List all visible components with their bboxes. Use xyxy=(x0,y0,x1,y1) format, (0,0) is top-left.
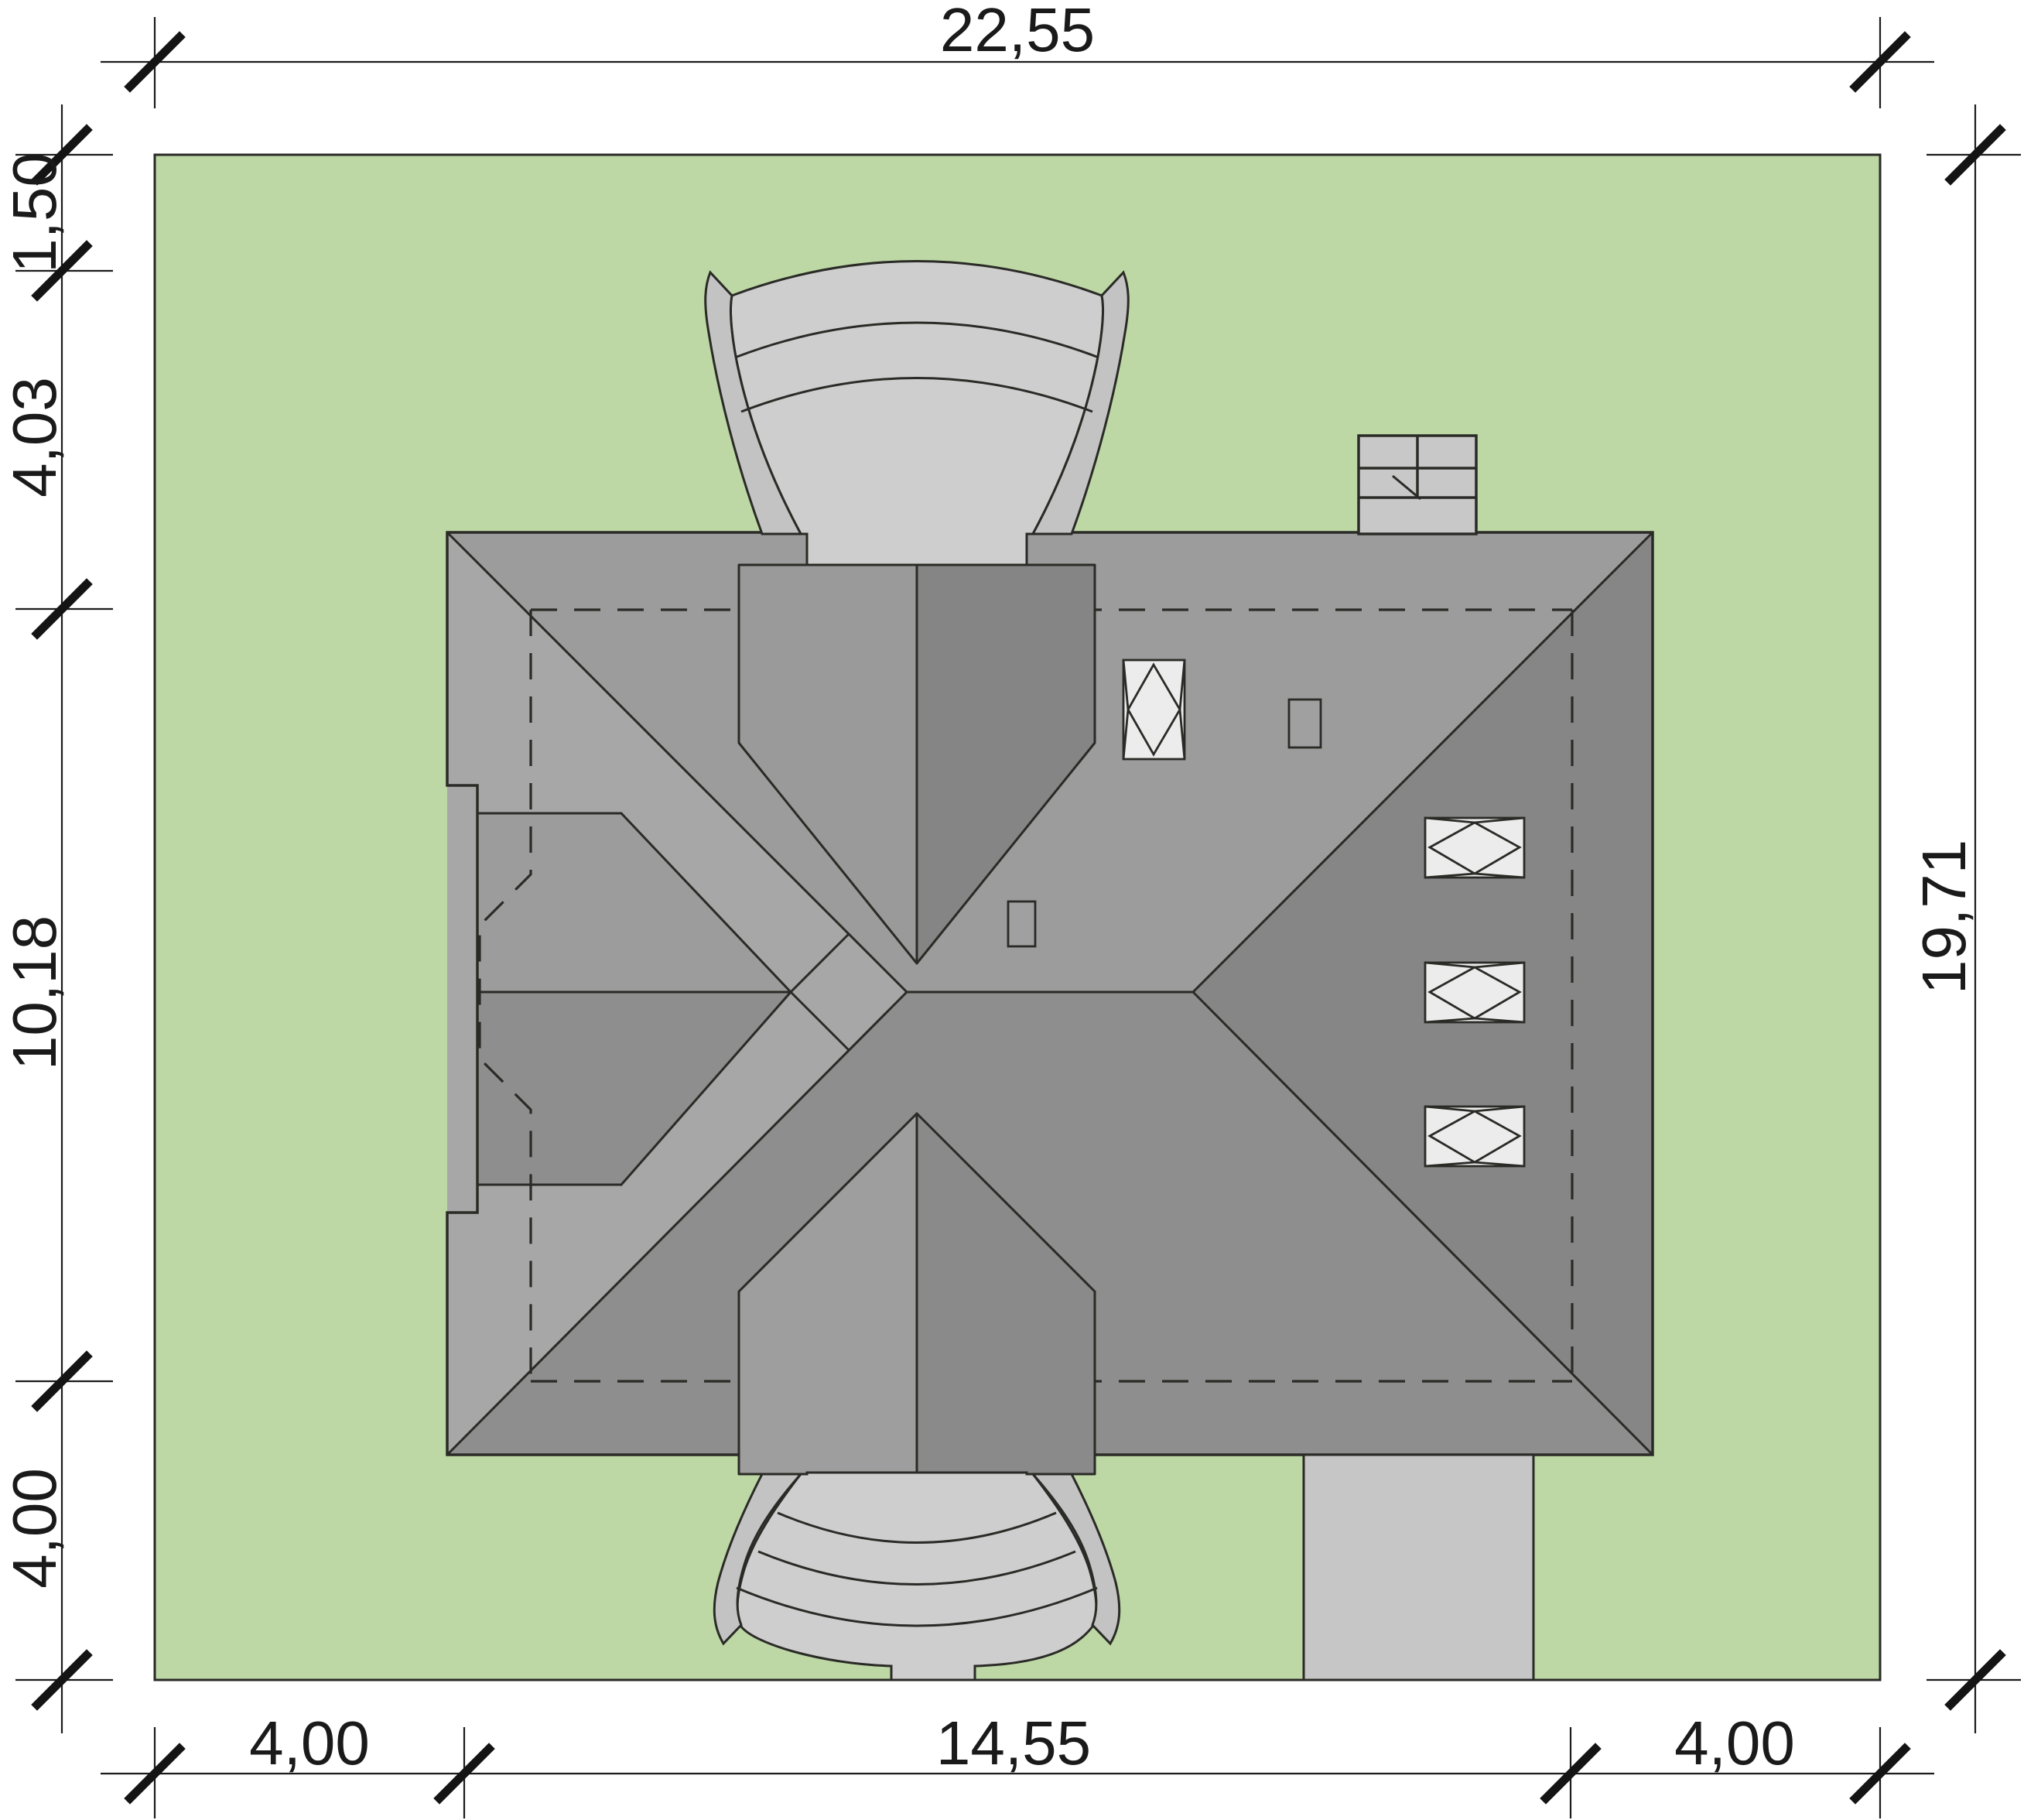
skylight-frame xyxy=(1425,1107,1524,1166)
dim-label-top: 22,55 xyxy=(940,0,1095,64)
dim-label-bottom-3: 4,00 xyxy=(1674,1709,1795,1777)
skylight xyxy=(1425,1107,1524,1166)
dim-label-left-4: 4,00 xyxy=(0,1468,69,1589)
driveway xyxy=(1304,1455,1533,1680)
dim-label-right: 19,71 xyxy=(1909,840,1978,994)
roof-window-frame xyxy=(1123,660,1185,759)
dim-label-bottom-2: 14,55 xyxy=(936,1709,1091,1777)
dim-label-left-1: 1,50 xyxy=(0,152,69,273)
chimney xyxy=(1359,436,1476,534)
roof-vent xyxy=(1289,700,1321,747)
skylights-east xyxy=(1425,818,1524,1166)
dim-label-bottom-1: 4,00 xyxy=(249,1709,370,1777)
skylight-frame xyxy=(1425,818,1524,877)
site-plan-canvas: 22,55 1,50 4,03 10,18 4,00 19,71 4,00 14… xyxy=(0,0,2024,1820)
rear-walkway xyxy=(737,1473,1096,1680)
site-plan-drawing: 22,55 1,50 4,03 10,18 4,00 19,71 4,00 14… xyxy=(0,0,2024,1820)
dim-label-left-3: 10,18 xyxy=(0,915,69,1070)
skylight xyxy=(1425,963,1524,1022)
dim-label-left-2: 4,03 xyxy=(0,377,69,498)
skylight-frame xyxy=(1425,963,1524,1022)
skylight xyxy=(1425,818,1524,877)
entrance-porch xyxy=(706,262,1129,566)
roof-window-north xyxy=(1123,660,1185,759)
roof-vent xyxy=(1008,901,1035,946)
